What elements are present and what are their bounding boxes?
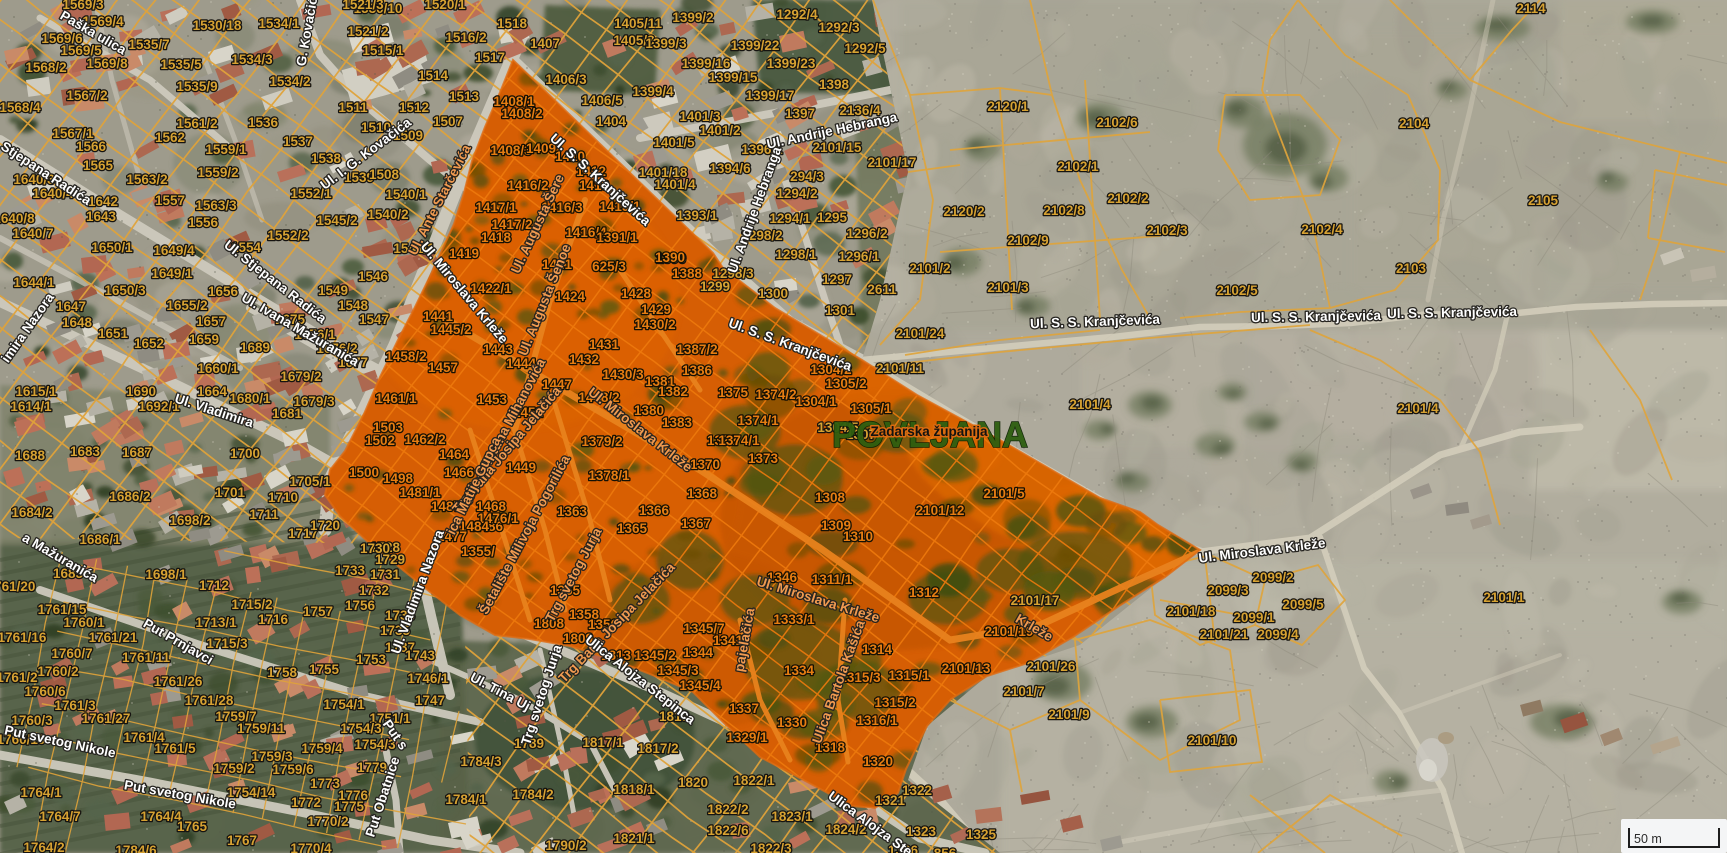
svg-text:1784/2: 1784/2 [512, 787, 553, 802]
svg-text:1756: 1756 [345, 598, 376, 613]
svg-text:1760/2: 1760/2 [37, 664, 78, 679]
svg-text:2101/4: 2101/4 [1069, 397, 1111, 412]
svg-text:1298/1: 1298/1 [775, 247, 817, 262]
svg-text:1517: 1517 [475, 50, 505, 65]
svg-text:2120/2: 2120/2 [943, 204, 984, 219]
svg-text:1507: 1507 [433, 114, 463, 129]
svg-text:1521/2: 1521/2 [347, 24, 388, 39]
svg-text:1561/2: 1561/2 [176, 116, 217, 131]
svg-text:1614/1: 1614/1 [10, 399, 52, 414]
svg-text:1399/22: 1399/22 [731, 38, 780, 53]
svg-text:1559/2: 1559/2 [197, 165, 238, 180]
svg-text:1649/4: 1649/4 [153, 243, 195, 258]
svg-text:1375: 1375 [718, 385, 749, 400]
svg-text:1296/1: 1296/1 [838, 249, 880, 264]
svg-text:1535/9: 1535/9 [176, 79, 217, 94]
svg-text:1310: 1310 [843, 529, 873, 544]
svg-text:1754/3: 1754/3 [340, 721, 382, 736]
svg-text:1320: 1320 [863, 754, 893, 769]
svg-text:1431: 1431 [589, 337, 620, 352]
svg-text:1761/11: 1761/11 [122, 650, 171, 665]
svg-text:1657: 1657 [196, 314, 226, 329]
svg-text:1822/6: 1822/6 [707, 823, 749, 838]
svg-text:1770/4: 1770/4 [290, 841, 332, 853]
svg-text:1760/6: 1760/6 [24, 684, 66, 699]
svg-text:2101/18: 2101/18 [1167, 604, 1216, 619]
svg-text:1399/15: 1399/15 [709, 70, 758, 85]
svg-text:1764/1: 1764/1 [20, 785, 62, 800]
svg-text:1401/3: 1401/3 [679, 109, 721, 124]
svg-text:1399/17: 1399/17 [746, 88, 795, 103]
svg-text:1481/1: 1481/1 [399, 485, 441, 500]
svg-text:1422/1: 1422/1 [470, 281, 512, 296]
svg-text:1502: 1502 [365, 433, 395, 448]
svg-text:1297: 1297 [822, 272, 852, 287]
svg-text:1379/2: 1379/2 [581, 434, 622, 449]
svg-text:1720: 1720 [310, 518, 340, 533]
svg-text:1518: 1518 [497, 16, 528, 31]
svg-text:2101/10: 2101/10 [1188, 733, 1237, 748]
svg-text:1514: 1514 [418, 68, 449, 83]
svg-text:1292/5: 1292/5 [844, 41, 886, 56]
svg-text:1378/1: 1378/1 [588, 468, 630, 483]
svg-text:1701: 1701 [215, 485, 246, 500]
svg-text:1535/5: 1535/5 [160, 57, 202, 72]
svg-text:1731: 1731 [370, 567, 401, 582]
svg-text:1567/2: 1567/2 [66, 88, 107, 103]
svg-text:2102/1: 2102/1 [1057, 159, 1099, 174]
svg-text:1380: 1380 [634, 403, 664, 418]
svg-text:1430/3: 1430/3 [602, 367, 644, 382]
svg-text:1775: 1775 [334, 799, 365, 814]
svg-text:2102/3: 2102/3 [1146, 223, 1188, 238]
svg-text:1300: 1300 [758, 286, 788, 301]
svg-text:1370: 1370 [690, 457, 720, 472]
svg-text:1757: 1757 [303, 604, 333, 619]
svg-text:2101/4: 2101/4 [1397, 401, 1439, 416]
svg-text:1686/1: 1686/1 [79, 532, 121, 547]
svg-text:2101/24: 2101/24 [896, 326, 945, 341]
svg-text:1784/1: 1784/1 [445, 792, 487, 807]
svg-text:1401/2: 1401/2 [699, 123, 740, 138]
svg-text:Ul. S. S. Kranjčevića: Ul. S. S. Kranjčevića [1251, 308, 1382, 325]
svg-text:1822/1: 1822/1 [733, 773, 775, 788]
svg-text:1511: 1511 [338, 100, 368, 115]
svg-text:2101/3: 2101/3 [987, 280, 1029, 295]
svg-text:1656: 1656 [208, 284, 239, 299]
svg-text:1388: 1388 [672, 266, 703, 281]
svg-text:1651: 1651 [98, 326, 129, 341]
svg-text:1790/2: 1790/2 [545, 838, 586, 853]
svg-text:1761/5: 1761/5 [154, 741, 196, 756]
svg-text:1333/1: 1333/1 [773, 612, 815, 627]
svg-text:1568/4: 1568/4 [0, 100, 41, 115]
svg-text:1716: 1716 [258, 612, 289, 627]
svg-text:1760/7: 1760/7 [51, 646, 92, 661]
svg-text:1374/2: 1374/2 [755, 387, 796, 402]
svg-text:1764/4: 1764/4 [140, 809, 182, 824]
svg-text:1767: 1767 [227, 833, 257, 848]
svg-text:1294/1: 1294/1 [769, 211, 811, 226]
svg-text:1569/8: 1569/8 [86, 56, 128, 71]
svg-text:1755: 1755 [309, 662, 340, 677]
svg-text:1822/2: 1822/2 [707, 802, 748, 817]
svg-text:2101/15: 2101/15 [813, 140, 862, 155]
svg-text:1534/3: 1534/3 [231, 52, 273, 67]
svg-text:1548: 1548 [338, 298, 369, 313]
svg-text:1540/2: 1540/2 [367, 207, 408, 222]
svg-text:1761/20: 1761/20 [0, 579, 35, 594]
svg-text:2101/13: 2101/13 [942, 661, 991, 676]
svg-text:1311/1: 1311/1 [812, 572, 853, 587]
svg-text:1761/16: 1761/16 [0, 630, 47, 645]
svg-text:1363: 1363 [557, 504, 588, 519]
svg-text:1301: 1301 [825, 303, 856, 318]
svg-text:1432: 1432 [569, 352, 599, 367]
svg-text:1540/1: 1540/1 [385, 187, 427, 202]
svg-text:1500: 1500 [349, 465, 379, 480]
svg-text:1464: 1464 [439, 447, 470, 462]
svg-text:1367: 1367 [681, 516, 711, 531]
svg-text:1393/1: 1393/1 [676, 208, 718, 223]
svg-text:1680/1: 1680/1 [229, 391, 271, 406]
svg-text:1429: 1429 [641, 302, 671, 317]
svg-text:1566: 1566 [76, 139, 107, 154]
svg-text:1398: 1398 [819, 77, 850, 92]
svg-text:1764/2: 1764/2 [23, 840, 64, 853]
svg-text:1449: 1449 [506, 460, 536, 475]
svg-text:1784/3: 1784/3 [460, 754, 502, 769]
svg-text:1698/2: 1698/2 [169, 513, 210, 528]
svg-text:1688: 1688 [15, 448, 46, 463]
svg-text:1690: 1690 [126, 384, 156, 399]
svg-text:2102/5: 2102/5 [1216, 283, 1258, 298]
svg-text:1761/27: 1761/27 [82, 711, 131, 726]
svg-text:1305/2: 1305/2 [825, 376, 866, 391]
svg-text:1759/2: 1759/2 [213, 761, 254, 776]
svg-text:1648: 1648 [62, 315, 93, 330]
svg-text:2099/4: 2099/4 [1257, 627, 1299, 642]
svg-text:1515/1: 1515/1 [362, 43, 404, 58]
svg-text:1428: 1428 [621, 286, 652, 301]
svg-text:1397: 1397 [785, 106, 815, 121]
svg-text:1445/2: 1445/2 [430, 322, 471, 337]
svg-text:1823/1: 1823/1 [771, 809, 813, 824]
svg-text:1562: 1562 [155, 130, 185, 145]
svg-text:1679/2: 1679/2 [280, 369, 321, 384]
svg-text:1462/2: 1462/2 [404, 432, 445, 447]
svg-text:1649/1: 1649/1 [151, 266, 193, 281]
svg-text:1345/4: 1345/4 [679, 678, 721, 693]
svg-text:1705/1: 1705/1 [289, 474, 331, 489]
svg-text:1643: 1643 [86, 209, 117, 224]
svg-text:1296/2: 1296/2 [846, 226, 887, 241]
svg-text:1664: 1664 [197, 384, 228, 399]
svg-text:1417/1: 1417/1 [475, 200, 517, 215]
svg-text:1652: 1652 [134, 336, 164, 351]
svg-text:1754/1: 1754/1 [323, 697, 365, 712]
svg-text:1733: 1733 [335, 563, 366, 578]
svg-text:1700: 1700 [230, 446, 260, 461]
svg-text:1399/2: 1399/2 [672, 10, 713, 25]
svg-text:1822/3: 1822/3 [750, 841, 792, 853]
svg-text:1387/2: 1387/2 [676, 342, 717, 357]
svg-text:1382: 1382 [658, 384, 688, 399]
svg-text:1660/1: 1660/1 [197, 361, 239, 376]
svg-text:2099/5: 2099/5 [1282, 597, 1324, 612]
svg-text:1430/2: 1430/2 [634, 317, 675, 332]
svg-text:1761/26: 1761/26 [154, 674, 203, 689]
svg-text:1373: 1373 [748, 451, 779, 466]
svg-text:2102/4: 2102/4 [1301, 222, 1343, 237]
svg-text:2101/17: 2101/17 [1011, 593, 1060, 608]
svg-text:1547: 1547 [359, 312, 389, 327]
svg-text:Ul. S. S. Kranjčevića: Ul. S. S. Kranjčevića [1387, 304, 1518, 321]
svg-text:1368: 1368 [687, 486, 718, 501]
svg-text:1549: 1549 [318, 283, 348, 298]
svg-text:2099/1: 2099/1 [1233, 610, 1275, 625]
svg-text:2099/2: 2099/2 [1252, 570, 1293, 585]
svg-text:1391/1: 1391/1 [596, 230, 638, 245]
svg-text:2102/8: 2102/8 [1043, 203, 1085, 218]
svg-text:2101/21: 2101/21 [1200, 627, 1249, 642]
svg-text:1534/2: 1534/2 [269, 74, 310, 89]
svg-text:1761/21: 1761/21 [89, 630, 138, 645]
svg-text:1683: 1683 [70, 444, 101, 459]
svg-text:1784/6: 1784/6 [115, 843, 157, 853]
svg-text:1761/28: 1761/28 [185, 693, 234, 708]
svg-text:1457: 1457 [428, 360, 458, 375]
svg-text:1537: 1537 [283, 134, 313, 149]
svg-text:1334: 1334 [784, 663, 815, 678]
svg-text:1512: 1512 [399, 100, 429, 115]
svg-text:1743: 1743 [405, 648, 436, 663]
svg-text:1374/1: 1374/1 [737, 413, 779, 428]
svg-text:1764/7: 1764/7 [39, 809, 80, 824]
svg-text:1640/7: 1640/7 [12, 226, 53, 241]
svg-text:1684/2: 1684/2 [11, 505, 52, 520]
svg-text:1406/3: 1406/3 [545, 72, 587, 87]
svg-text:1530/18: 1530/18 [193, 18, 242, 33]
svg-text:1399/4: 1399/4 [632, 84, 674, 99]
svg-text:1345/2: 1345/2 [634, 648, 675, 663]
svg-text:1747: 1747 [415, 693, 445, 708]
svg-text:1424: 1424 [555, 289, 586, 304]
svg-text:1821/1: 1821/1 [613, 831, 655, 846]
svg-text:1820: 1820 [678, 775, 708, 790]
svg-text:2101/2: 2101/2 [909, 261, 950, 276]
svg-text:1405/11: 1405/11 [614, 16, 663, 31]
svg-text:1712: 1712 [199, 578, 229, 593]
svg-text:1770/2: 1770/2 [307, 814, 348, 829]
svg-text:1419: 1419 [449, 246, 479, 261]
svg-text:1818/1: 1818/1 [613, 782, 655, 797]
svg-text:1521/3: 1521/3 [342, 0, 384, 12]
svg-text:1759/4: 1759/4 [301, 741, 343, 756]
svg-text:1568/2: 1568/2 [25, 60, 66, 75]
svg-text:1374/1: 1374/1 [718, 433, 760, 448]
svg-text:1760/1: 1760/1 [63, 615, 105, 630]
svg-text:1559/1: 1559/1 [205, 142, 247, 157]
svg-text:1508: 1508 [369, 167, 400, 182]
svg-text:1418: 1418 [481, 230, 512, 245]
svg-text:1713/1: 1713/1 [195, 615, 237, 630]
svg-text:1715/2: 1715/2 [231, 597, 272, 612]
svg-text:1315/2: 1315/2 [874, 695, 915, 710]
svg-text:1323: 1323 [906, 824, 937, 839]
svg-text:1538: 1538 [311, 151, 342, 166]
svg-text:1711: 1711 [249, 507, 279, 522]
svg-text:1329/1: 1329/1 [726, 730, 768, 745]
svg-text:1761/2: 1761/2 [0, 670, 38, 685]
svg-text:2101/26: 2101/26 [1027, 659, 1076, 674]
svg-text:1773: 1773 [310, 776, 341, 791]
svg-text:1535/7: 1535/7 [128, 37, 169, 52]
svg-text:1644/1: 1644/1 [13, 275, 55, 290]
svg-text:2101/7: 2101/7 [1003, 684, 1044, 699]
svg-text:1556: 1556 [188, 215, 219, 230]
svg-text:1294/2: 1294/2 [776, 186, 817, 201]
svg-text:1710: 1710 [268, 490, 298, 505]
svg-text:2101/5: 2101/5 [983, 486, 1025, 501]
svg-text:294/3: 294/3 [790, 169, 824, 184]
svg-text:1394/6: 1394/6 [709, 161, 751, 176]
svg-text:50 m: 50 m [1634, 832, 1662, 846]
svg-text:1563/2: 1563/2 [126, 172, 167, 187]
svg-text:1513: 1513 [449, 89, 480, 104]
svg-text:1545/2: 1545/2 [316, 213, 357, 228]
svg-text:1407: 1407 [530, 36, 560, 51]
svg-text:1386: 1386 [682, 363, 713, 378]
svg-text:1355/: 1355/ [461, 544, 495, 559]
svg-text:2104: 2104 [1399, 116, 1430, 131]
svg-text:1681: 1681 [272, 406, 303, 421]
svg-text:1565: 1565 [83, 158, 114, 173]
svg-text:1516/2: 1516/2 [445, 30, 486, 45]
svg-text:1772: 1772 [291, 795, 321, 810]
svg-text:1314: 1314 [862, 642, 893, 657]
svg-text:1383: 1383 [662, 415, 693, 430]
svg-text:1299: 1299 [700, 279, 730, 294]
svg-text:1312: 1312 [909, 585, 939, 600]
svg-text:1330: 1330 [777, 715, 807, 730]
svg-text:1615/1: 1615/1 [15, 384, 57, 399]
svg-text:2102/6: 2102/6 [1096, 115, 1138, 130]
svg-text:1563/3: 1563/3 [195, 198, 237, 213]
svg-text:1399/16: 1399/16 [682, 56, 731, 71]
svg-text:1399/23: 1399/23 [767, 56, 816, 71]
svg-text:625/3: 625/3 [592, 259, 626, 274]
svg-text:2103: 2103 [1396, 261, 1427, 276]
svg-text:1416/2: 1416/2 [507, 178, 548, 193]
svg-text:1344: 1344 [683, 645, 714, 660]
svg-text:1687: 1687 [122, 445, 152, 460]
svg-text:2101/9: 2101/9 [1048, 707, 1089, 722]
svg-text:1817/1: 1817/1 [582, 735, 624, 750]
svg-text:1753: 1753 [356, 652, 387, 667]
svg-text:1308: 1308 [815, 490, 846, 505]
svg-text:1390: 1390 [655, 250, 685, 265]
svg-text:1366: 1366 [639, 503, 670, 518]
svg-text:1404: 1404 [596, 114, 627, 129]
svg-text:1689: 1689 [240, 340, 270, 355]
svg-text:2102/9: 2102/9 [1007, 233, 1048, 248]
svg-text:1292/4: 1292/4 [776, 7, 818, 22]
svg-text:1817/2: 1817/2 [637, 741, 678, 756]
svg-text:2105: 2105 [1528, 193, 1559, 208]
svg-text:1325: 1325 [966, 827, 997, 842]
svg-text:2120/1: 2120/1 [987, 99, 1029, 114]
svg-text:1453: 1453 [477, 392, 508, 407]
svg-text:1765: 1765 [177, 819, 208, 834]
svg-text:1758: 1758 [267, 665, 298, 680]
svg-text:1686/2: 1686/2 [109, 489, 150, 504]
svg-text:1759/11: 1759/11 [237, 721, 286, 736]
svg-text:1458/2: 1458/2 [385, 349, 426, 364]
svg-text:1292/3: 1292/3 [818, 20, 860, 35]
svg-text:1406/5: 1406/5 [581, 93, 623, 108]
svg-text:1304/1: 1304/1 [795, 394, 837, 409]
svg-text:2101/1: 2101/1 [1483, 590, 1525, 605]
svg-text:1520/1: 1520/1 [424, 0, 466, 12]
svg-text:1322: 1322 [902, 783, 932, 798]
svg-text:Zadarska županija: Zadarska županija [870, 424, 988, 439]
svg-text:2102/2: 2102/2 [1107, 191, 1148, 206]
svg-text:1552/2: 1552/2 [267, 228, 308, 243]
svg-text:1640/8: 1640/8 [0, 211, 35, 226]
svg-text:1534/1: 1534/1 [258, 16, 300, 31]
svg-text:2101/17: 2101/17 [868, 155, 917, 170]
svg-text:1759/6: 1759/6 [272, 762, 314, 777]
svg-text:1715/3: 1715/3 [206, 636, 248, 651]
svg-text:1650/1: 1650/1 [91, 240, 133, 255]
svg-text:1536: 1536 [248, 115, 279, 130]
svg-text:1345/3: 1345/3 [657, 663, 699, 678]
svg-text:1399/3: 1399/3 [645, 36, 687, 51]
svg-text:1498: 1498 [383, 471, 414, 486]
svg-text:1659: 1659 [189, 332, 219, 347]
svg-text:1315/1: 1315/1 [888, 668, 930, 683]
svg-text:856: 856 [934, 846, 957, 853]
svg-text:1337: 1337 [729, 701, 759, 716]
svg-text:1650/3: 1650/3 [104, 283, 146, 298]
svg-text:1698/1: 1698/1 [145, 567, 187, 582]
svg-text:2101/12: 2101/12 [916, 503, 965, 518]
svg-text:1546: 1546 [358, 269, 389, 284]
svg-text:1316/1: 1316/1 [856, 713, 898, 728]
svg-text:1647: 1647 [56, 299, 86, 314]
svg-text:1295: 1295 [817, 210, 848, 225]
svg-text:1732: 1732 [359, 583, 389, 598]
svg-text:1461/1: 1461/1 [375, 391, 417, 406]
svg-text:2114: 2114 [1516, 1, 1546, 16]
svg-text:1365: 1365 [617, 521, 648, 536]
svg-text:2099/3: 2099/3 [1207, 583, 1249, 598]
svg-text:1401/4: 1401/4 [654, 177, 696, 192]
svg-text:1730: 1730 [360, 541, 390, 556]
svg-text:1557: 1557 [155, 193, 185, 208]
svg-text:1655/2: 1655/2 [166, 298, 207, 313]
svg-text:1408/2: 1408/2 [501, 106, 542, 121]
svg-text:1746/1: 1746/1 [407, 671, 449, 686]
svg-text:2611: 2611 [867, 282, 897, 297]
svg-text:2101/11: 2101/11 [876, 361, 925, 376]
svg-text:1401/5: 1401/5 [653, 135, 695, 150]
svg-text:1321: 1321 [875, 793, 906, 808]
